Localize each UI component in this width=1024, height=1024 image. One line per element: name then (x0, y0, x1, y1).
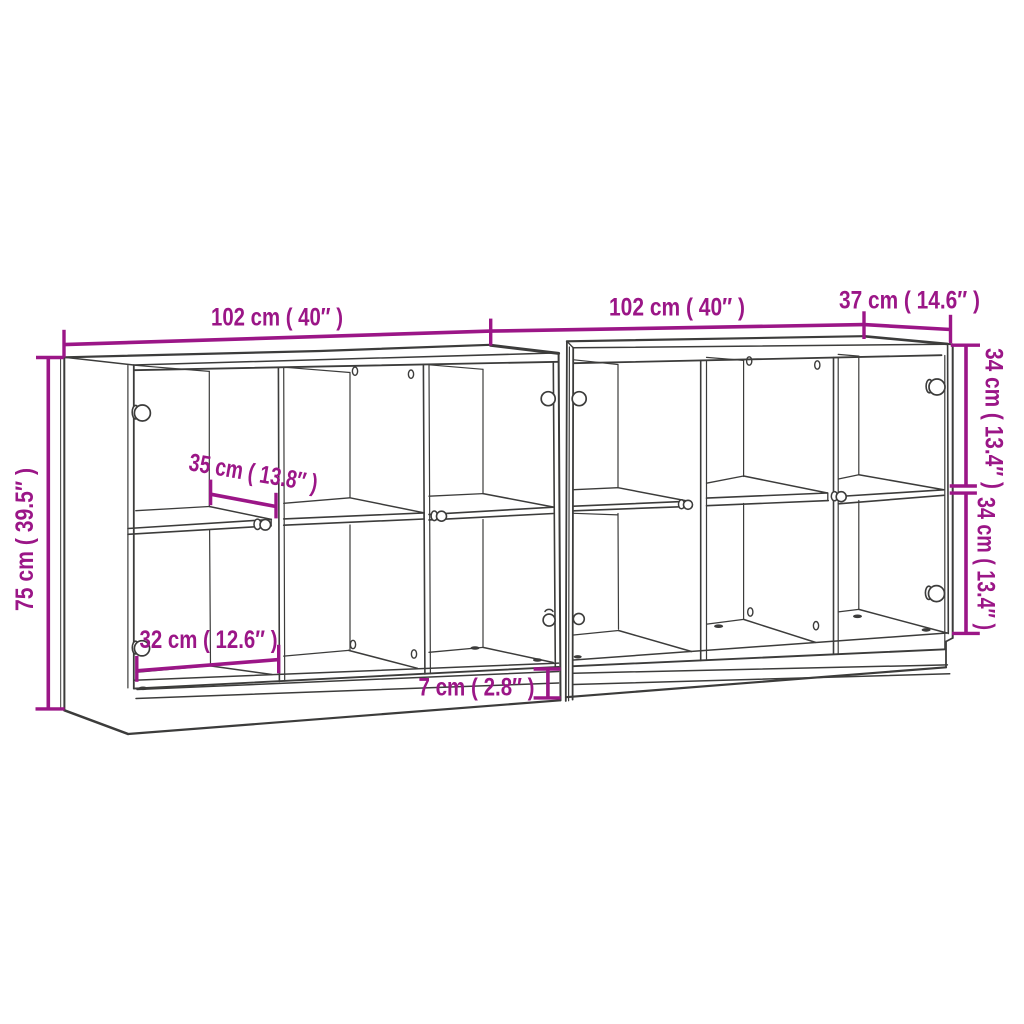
svg-text:102 cm ( 40″ ): 102 cm ( 40″ ) (609, 294, 745, 322)
svg-text:34 cm ( 13.4″ ): 34 cm ( 13.4″ ) (972, 497, 1000, 630)
svg-text:102 cm ( 40″ ): 102 cm ( 40″ ) (211, 303, 343, 331)
svg-text:7 cm ( 2.8″ ): 7 cm ( 2.8″ ) (419, 674, 535, 702)
svg-text:32 cm ( 12.6″ ): 32 cm ( 12.6″ ) (140, 626, 278, 654)
svg-text:37 cm ( 14.6″ ): 37 cm ( 14.6″ ) (839, 287, 980, 315)
svg-text:34 cm ( 13.4″ ): 34 cm ( 13.4″ ) (980, 348, 1008, 489)
svg-text:75 cm ( 39.5″ ): 75 cm ( 39.5″ ) (11, 468, 39, 611)
